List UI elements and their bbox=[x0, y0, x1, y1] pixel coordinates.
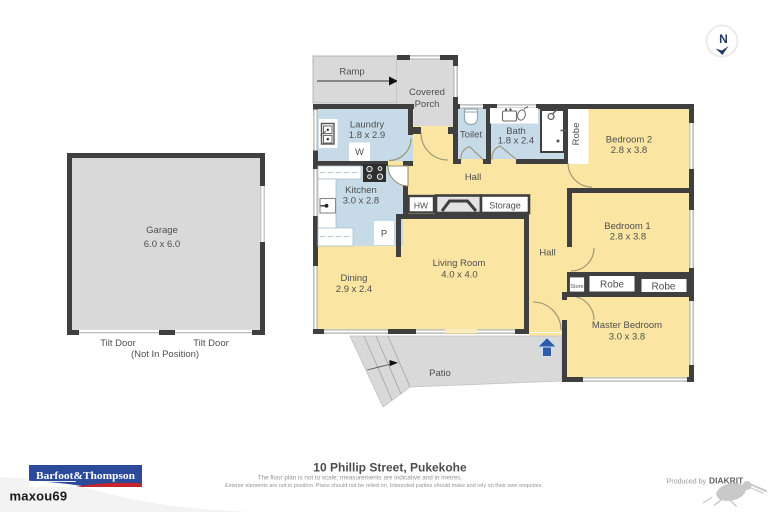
svg-text:Dining: Dining bbox=[341, 273, 368, 284]
svg-text:2.8 x 3.8: 2.8 x 3.8 bbox=[610, 232, 646, 243]
svg-text:Barfoot&Thompson: Barfoot&Thompson bbox=[36, 470, 135, 482]
svg-text:Storage: Storage bbox=[489, 201, 521, 211]
svg-text:Hall: Hall bbox=[465, 172, 481, 183]
svg-text:P: P bbox=[381, 229, 387, 240]
svg-text:1.8 x 2.9: 1.8 x 2.9 bbox=[349, 130, 385, 141]
svg-text:Produced by: Produced by bbox=[667, 479, 707, 486]
svg-text:maxou69: maxou69 bbox=[10, 489, 68, 504]
svg-text:(Not In Position): (Not In Position) bbox=[131, 349, 199, 360]
svg-text:Tilt Door: Tilt Door bbox=[193, 338, 229, 349]
svg-text:Patio: Patio bbox=[429, 368, 451, 379]
svg-text:Robe: Robe bbox=[600, 280, 624, 291]
svg-text:3.0 x 3.8: 3.0 x 3.8 bbox=[609, 332, 645, 343]
svg-text:Ramp: Ramp bbox=[339, 67, 364, 78]
svg-text:2.8 x 3.8: 2.8 x 3.8 bbox=[611, 145, 647, 156]
svg-text:Kitchen: Kitchen bbox=[345, 185, 377, 196]
svg-text:The floor plan is not to scale: The floor plan is not to scale; measurem… bbox=[258, 475, 463, 482]
svg-text:3.0 x 2.8: 3.0 x 2.8 bbox=[343, 196, 379, 207]
svg-text:Master Bedroom: Master Bedroom bbox=[592, 320, 662, 331]
svg-text:Store: Store bbox=[570, 284, 583, 290]
svg-text:Tilt Door: Tilt Door bbox=[100, 338, 136, 349]
svg-text:Living Room: Living Room bbox=[433, 258, 486, 269]
svg-text:2.9 x 2.4: 2.9 x 2.4 bbox=[336, 284, 372, 295]
svg-text:HW: HW bbox=[414, 201, 428, 211]
svg-text:Porch: Porch bbox=[415, 99, 440, 110]
svg-text:Laundry: Laundry bbox=[350, 120, 385, 131]
svg-text:N: N bbox=[719, 32, 728, 46]
svg-text:Robe: Robe bbox=[652, 282, 676, 293]
svg-text:4.0 x 4.0: 4.0 x 4.0 bbox=[441, 270, 477, 281]
svg-text:DIAKRIT: DIAKRIT bbox=[709, 476, 743, 486]
svg-text:Toilet: Toilet bbox=[460, 130, 483, 141]
svg-text:Hall: Hall bbox=[539, 248, 555, 259]
svg-text:6.0 x 6.0: 6.0 x 6.0 bbox=[144, 239, 180, 250]
svg-text:Bedroom 1: Bedroom 1 bbox=[604, 221, 650, 232]
svg-text:Garage: Garage bbox=[146, 225, 178, 236]
svg-text:W: W bbox=[355, 147, 364, 158]
svg-text:Bedroom 2: Bedroom 2 bbox=[606, 135, 652, 146]
svg-text:Exterior elements are not in p: Exterior elements are not in position. P… bbox=[225, 483, 543, 489]
svg-text:1.8 x 2.4: 1.8 x 2.4 bbox=[498, 136, 534, 147]
svg-text:Covered: Covered bbox=[409, 87, 445, 98]
svg-text:10 Phillip Street, Pukekohe: 10 Phillip Street, Pukekohe bbox=[313, 461, 467, 475]
svg-text:Robe: Robe bbox=[571, 123, 582, 146]
